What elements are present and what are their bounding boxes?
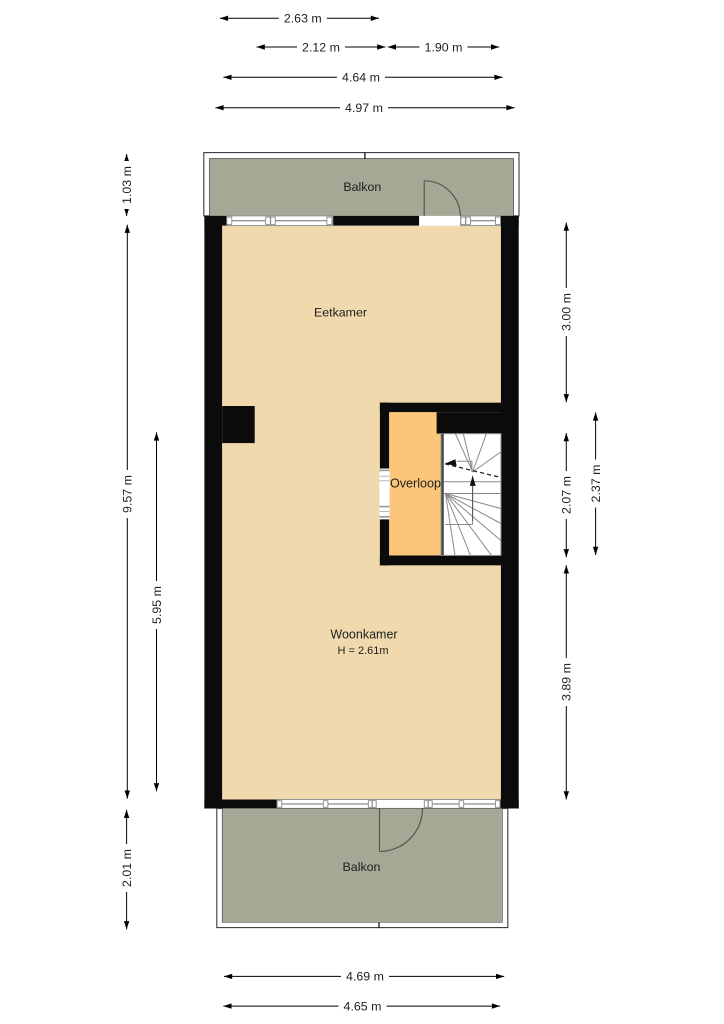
svg-text:Balkon: Balkon [343, 180, 381, 194]
svg-text:2.01 m: 2.01 m [120, 849, 134, 887]
svg-text:3.89 m: 3.89 m [560, 663, 574, 701]
svg-text:4.65 m: 4.65 m [344, 999, 382, 1013]
svg-text:2.07 m: 2.07 m [560, 476, 574, 514]
svg-text:4.97 m: 4.97 m [345, 101, 383, 115]
svg-text:1.03 m: 1.03 m [120, 166, 134, 204]
svg-text:2.12 m: 2.12 m [302, 40, 340, 54]
svg-text:H = 2.61m: H = 2.61m [337, 645, 388, 657]
svg-text:Woonkamer: Woonkamer [330, 627, 397, 641]
svg-text:9.57 m: 9.57 m [121, 475, 135, 513]
svg-text:4.69 m: 4.69 m [346, 970, 384, 984]
svg-text:5.95 m: 5.95 m [150, 586, 164, 624]
svg-text:2.63 m: 2.63 m [284, 12, 322, 26]
svg-text:Overloop: Overloop [390, 477, 441, 491]
svg-text:4.64 m: 4.64 m [342, 71, 380, 85]
svg-text:Balkon: Balkon [343, 860, 381, 874]
svg-text:2.37 m: 2.37 m [589, 465, 603, 503]
svg-text:3.00 m: 3.00 m [560, 293, 574, 331]
svg-text:Eetkamer: Eetkamer [314, 306, 367, 320]
svg-text:1.90 m: 1.90 m [425, 40, 463, 54]
